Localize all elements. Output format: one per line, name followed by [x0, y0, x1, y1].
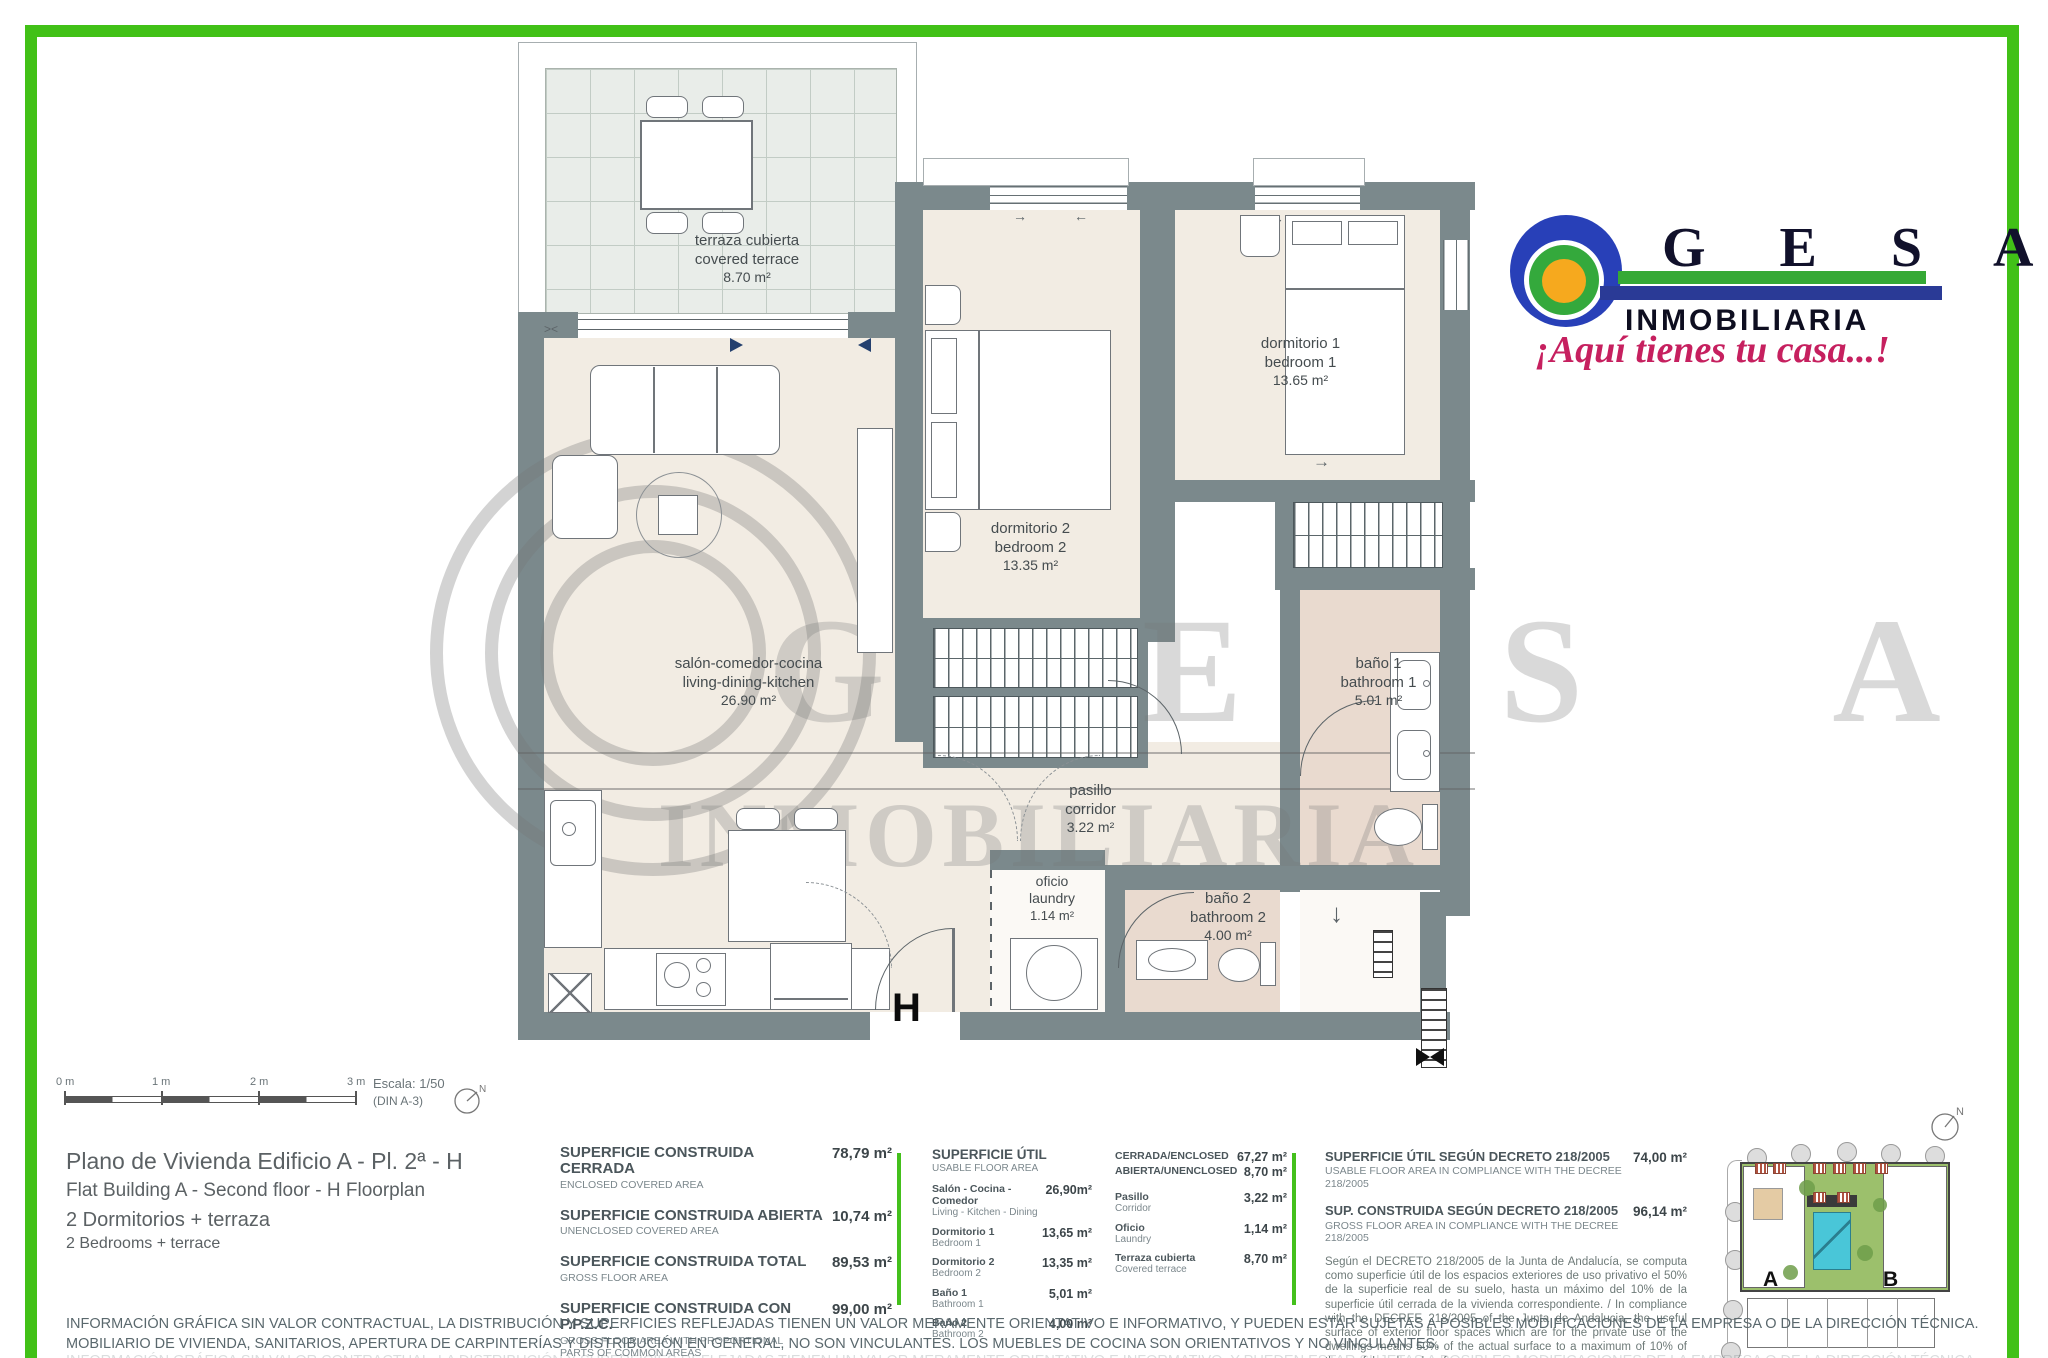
chair — [646, 96, 688, 118]
table-row: Terraza cubierta Covered terrace 8,70 m² — [1115, 1252, 1287, 1276]
building-b-label: B — [1883, 1268, 1898, 1292]
disclaimer-ghost-line: INFORMACIÓN GRÁFICA SIN VALOR CONTRACTUA… — [66, 1353, 1979, 1358]
room-area: 13.65 m² — [1213, 372, 1388, 389]
north-arrow-icon: N — [450, 1080, 490, 1120]
terrace-strip — [1755, 1163, 1768, 1174]
room-area: 13.35 m² — [943, 557, 1118, 574]
bedroom1-window — [1255, 186, 1360, 204]
building-a-terrace — [1753, 1188, 1783, 1220]
room-area: 1.14 m² — [1004, 908, 1100, 924]
logo-blue-bar — [1600, 286, 1942, 300]
sofa — [590, 365, 780, 455]
room-label-bedroom2: dormitorio 2 bedroom 2 13.35 m² — [943, 520, 1118, 575]
door-leaf — [952, 928, 955, 1012]
garden-tree-icon — [1799, 1180, 1815, 1196]
terrace-strip — [1813, 1163, 1826, 1174]
table-row: Baño 1 Bathroom 1 5,01 m² — [932, 1287, 1092, 1311]
wall-segment — [1140, 182, 1175, 642]
table-row: SUPERFICIE CONSTRUIDA TOTAL GROSS FLOOR … — [560, 1254, 892, 1284]
room-name-es: baño 2 — [1158, 890, 1298, 909]
bed-line — [978, 331, 980, 509]
coffee-table — [658, 495, 698, 535]
nightstand — [1240, 215, 1280, 257]
site-plan: N A B — [1725, 1100, 1995, 1350]
terrace-strip — [1813, 1192, 1826, 1203]
logo-tagline: ¡Aquí tienes tu casa...! — [1535, 328, 1890, 372]
wardrobe — [933, 628, 1138, 688]
window-sill — [923, 158, 1129, 186]
wall-segment — [990, 850, 1105, 870]
room-name-en: bedroom 2 — [943, 539, 1118, 558]
garden-tree-icon — [1873, 1198, 1887, 1212]
scale-din: (DIN A-3) — [373, 1094, 423, 1108]
wall-segment — [1440, 210, 1470, 892]
title-en: Flat Building A - Second floor - H Floor… — [66, 1180, 463, 1202]
wall-segment — [1275, 502, 1293, 568]
duct — [1373, 930, 1393, 978]
chair — [646, 212, 688, 234]
floorplan-sheet: → ← → ← → >< G E S A INMOBILIARIA — [0, 0, 2048, 1358]
terrace-sliding-door — [578, 319, 848, 330]
column-header-es: SUPERFICIE ÚTIL — [932, 1147, 1092, 1163]
wall-segment — [1360, 182, 1475, 210]
unit-letter: H — [892, 986, 921, 1031]
table-row: ABIERTA/UNENCLOSED 8,70 m² — [1115, 1165, 1287, 1179]
room-label-terrace: terraza cubierta covered terrace 8.70 m² — [662, 232, 832, 287]
toilet — [1218, 948, 1260, 982]
garden-tree-icon — [1783, 1265, 1798, 1280]
room-label-living: salón-comedor-cocina living-dining-kitch… — [656, 655, 841, 710]
burner — [696, 982, 711, 997]
utility-floor — [1300, 890, 1420, 1012]
room-name-en: bathroom 1 — [1316, 674, 1441, 693]
room-area: 4.00 m² — [1158, 927, 1298, 944]
wall-segment — [1280, 590, 1300, 892]
room-name-es: pasillo — [1023, 782, 1158, 801]
wall-segment — [1105, 865, 1440, 890]
wall-segment — [960, 1012, 1450, 1040]
svg-text:N: N — [479, 1084, 486, 1095]
terrace-strip — [1837, 1192, 1850, 1203]
chair — [794, 808, 838, 830]
pool — [1813, 1212, 1851, 1270]
terrace-strip — [1833, 1163, 1846, 1174]
table-row: Pasillo Corridor 3,22 m² — [1115, 1191, 1287, 1215]
floor-plan: → ← → ← → >< G E S A INMOBILIARIA — [518, 40, 1458, 1040]
sofa-line — [653, 367, 655, 453]
pillow — [931, 338, 957, 414]
wall-segment — [1175, 480, 1475, 502]
table-row: Salón - Cocina - Comedor Living - Kitche… — [932, 1183, 1092, 1219]
scale-tick — [355, 1091, 357, 1105]
room-area: 26.90 m² — [656, 692, 841, 709]
window-arrow-icon: → — [1013, 208, 1027, 224]
green-divider — [1292, 1153, 1296, 1305]
svg-text:N: N — [1956, 1106, 1964, 1118]
bedroom2-window — [990, 186, 1127, 204]
scale-tick — [64, 1091, 66, 1105]
tree-icon — [1881, 1144, 1901, 1164]
room-name-es: terraza cubierta — [662, 232, 832, 251]
wall-segment — [518, 312, 544, 1040]
room-label-bathroom1: baño 1 bathroom 1 5.01 m² — [1316, 655, 1441, 710]
toilet-tank — [1260, 942, 1276, 986]
scale-tick-label: 3 m — [347, 1076, 365, 1088]
room-label-corridor: pasillo corridor 3.22 m² — [1023, 782, 1158, 837]
title-es: Plano de Vivienda Edificio A - Pl. 2ª - … — [66, 1148, 463, 1175]
chair — [702, 212, 744, 234]
wall-segment — [518, 1012, 870, 1040]
scale-text: Escala: 1/50 — [373, 1076, 445, 1091]
tree-icon — [1791, 1144, 1811, 1164]
tap-icon — [1423, 750, 1430, 757]
bedroom1-side-window — [1443, 240, 1469, 310]
room-name-es: dormitorio 2 — [943, 520, 1118, 539]
toilet — [1374, 808, 1422, 846]
siteplan-north-icon: N — [1925, 1102, 1975, 1147]
logo-ball-orange-center — [1542, 259, 1586, 303]
room-area: 5.01 m² — [1316, 692, 1441, 709]
subtitle-en: 2 Bedrooms + terrace — [66, 1235, 463, 1253]
armchair — [552, 455, 618, 539]
scale-tick-label: 1 m — [152, 1076, 170, 1088]
logo-green-bar — [1618, 271, 1926, 284]
room-area: 3.22 m² — [1023, 819, 1158, 836]
table-row: CERRADA/ENCLOSED 67,27 m² — [1115, 1150, 1287, 1164]
chair — [702, 96, 744, 118]
table-row: SUPERFICIE CONSTRUIDA ABIERTA UNENCLOSED… — [560, 1208, 892, 1238]
pillow — [1348, 221, 1398, 245]
room-name-en: covered terrace — [662, 251, 832, 270]
sofa-line — [716, 367, 718, 453]
table-row: Dormitorio 1 Bedroom 1 13,65 m² — [932, 1226, 1092, 1250]
room-name-es: salón-comedor-cocina — [656, 655, 841, 674]
toilet-tank — [1422, 804, 1438, 850]
scale-tick — [161, 1091, 163, 1105]
scale-tick-label: 2 m — [250, 1076, 268, 1088]
table-row: SUPERFICIE CONSTRUIDA CERRADA ENCLOSED C… — [560, 1145, 892, 1191]
room-name-en: bedroom 1 — [1213, 354, 1388, 373]
nightstand — [925, 285, 961, 325]
subtitle-es: 2 Dormitorios + terraza — [66, 1209, 463, 1232]
room-label-bedroom1: dormitorio 1 bedroom 1 13.65 m² — [1213, 335, 1388, 390]
enclosed-areas-column: CERRADA/ENCLOSED 67,27 m² ABIERTA/UNENCL… — [1115, 1150, 1287, 1283]
table-row: Oficio Laundry 1,14 m² — [1115, 1222, 1287, 1246]
title-block: Plano de Vivienda Edificio A - Pl. 2ª - … — [66, 1148, 463, 1253]
table-row: SUP. CONSTRUIDA SEGÚN DECRETO 218/2005 G… — [1325, 1204, 1687, 1244]
door-symbol: >< — [544, 322, 558, 336]
terrace-strip — [1853, 1163, 1866, 1174]
shaft-x-box — [548, 973, 592, 1013]
room-label-laundry: oficio laundry 1.14 m² — [1004, 873, 1100, 924]
room-name-en: laundry — [1004, 890, 1100, 907]
table-row: SUPERFICIE ÚTIL SEGÚN DECRETO 218/2005 U… — [1325, 1150, 1687, 1190]
room-name-en: corridor — [1023, 801, 1158, 820]
wall-segment — [895, 182, 990, 210]
disclaimer-line-1: INFORMACIÓN GRÁFICA SIN VALOR CONTRACTUA… — [66, 1316, 1979, 1332]
room-area: 8.70 m² — [662, 269, 832, 286]
room-name-es: oficio — [1004, 873, 1100, 890]
oven-door-line — [774, 998, 848, 1000]
wall-segment — [1420, 892, 1470, 916]
wall-segment — [1275, 568, 1475, 590]
scale-tick-label: 0 m — [56, 1076, 74, 1088]
window-sill — [1253, 158, 1365, 186]
direction-arrow-icon: → — [1313, 452, 1330, 472]
room-name-es: baño 1 — [1316, 655, 1441, 674]
pillow — [931, 422, 957, 498]
tree-icon — [1837, 1142, 1857, 1162]
scale-tick — [258, 1091, 260, 1105]
pillow — [1292, 221, 1342, 245]
green-divider — [897, 1153, 901, 1305]
building-a-label: A — [1763, 1268, 1778, 1292]
wall-segment — [895, 182, 923, 742]
garden-tree-icon — [1857, 1245, 1873, 1261]
slide-direction-icon — [730, 338, 743, 352]
window-arrow-icon: ← — [1074, 208, 1088, 224]
terrace-strip — [1773, 1163, 1786, 1174]
scale-bar-line — [64, 1096, 356, 1103]
column-header-en: USABLE FLOOR AREA — [932, 1163, 1092, 1175]
wall-segment — [1105, 865, 1125, 1012]
slide-direction-icon — [858, 338, 871, 352]
burner — [664, 962, 690, 988]
section-marker-icon — [1430, 1048, 1444, 1066]
section-marker-icon — [1416, 1048, 1430, 1066]
room-name-en: living-dining-kitchen — [656, 674, 841, 693]
bedroom1-door-arc — [1108, 680, 1182, 754]
room-name-en: bathroom 2 — [1158, 909, 1298, 928]
down-arrow-icon: ↓ — [1330, 898, 1343, 929]
tv-sideboard — [857, 428, 893, 653]
disclaimer-line-2: MOBILIARIO DE VIVIENDA, SANITARIOS, APER… — [66, 1336, 1439, 1352]
chair — [736, 808, 780, 830]
room-label-bathroom2: baño 2 bathroom 2 4.00 m² — [1158, 890, 1298, 945]
room-name-es: dormitorio 1 — [1213, 335, 1388, 354]
folding-door — [990, 870, 992, 1012]
bedroom1-wardrobe — [1293, 502, 1443, 568]
washer-drum — [1026, 945, 1082, 1001]
burner — [696, 958, 711, 973]
bed-line — [1286, 288, 1404, 290]
table-row: Dormitorio 2 Bedroom 2 13,35 m² — [932, 1256, 1092, 1280]
terrace-strip — [1875, 1163, 1888, 1174]
terrace-table — [640, 120, 753, 210]
sink-drain — [562, 822, 576, 836]
